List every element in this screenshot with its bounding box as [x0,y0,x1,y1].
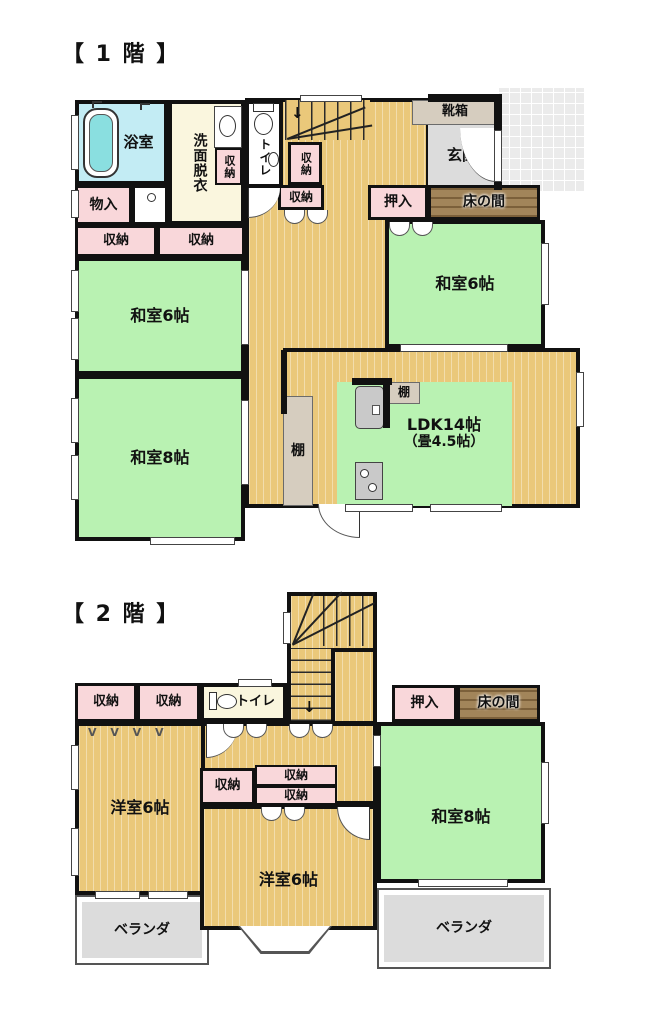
double-door-icon [388,222,434,236]
shower-icon [92,101,102,108]
bay-window [240,926,330,951]
shower-icon [140,103,150,110]
tokonoma-label: 床の間 [478,695,520,711]
toilet-icon [217,694,237,709]
closet-monoire: 物入 [75,185,132,225]
veranda-label: ベランダ [114,922,170,938]
window [71,318,79,360]
room-label: 浴室 [123,134,153,151]
shoe-cabinet: 靴箱 [412,100,498,125]
room-label: 洋室6帖 [259,871,318,889]
window [71,398,79,443]
room-washitsu8-1f: 和室8帖 [75,375,245,541]
down-arrow-icon: ↓ [291,104,304,122]
closet-oshiire-1f: 押入 [368,185,428,220]
closet-e-2f: 収納 [255,786,337,805]
closet-label: 収納 [299,152,312,176]
shelf-label: 棚 [398,386,410,400]
sink-basin [372,405,380,415]
down-arrow-icon: ↓ [303,698,316,716]
closet-label: 収納 [222,155,235,179]
closet-b-2f: 収納 [137,683,200,722]
sliding-door [400,344,508,352]
window [430,504,502,512]
tokonoma-label: 床の間 [463,194,505,210]
title-floor1: 【 1 階 】 [62,36,180,68]
closet-a-2f: 収納 [75,683,137,722]
veranda-right: ベランダ [377,888,551,969]
room-washitsu8-2f: 和室8帖 [377,722,545,883]
wall [281,350,287,414]
double-door-icon [260,807,306,821]
closet-label: 収納 [188,234,214,249]
bathtub-icon [83,108,119,178]
closet-label: 収納 [214,779,240,794]
floorplan-canvas: 【 1 階 】 ↓ 浴室 洗面脱衣 収納 トイレ 物入 [0,0,655,1024]
closet-label: 収納 [93,695,119,710]
burner [360,469,369,478]
room-label: 洗面脱衣 [191,133,207,193]
window [576,372,584,427]
closet-label: 収納 [155,695,181,710]
bathtub-water [89,114,113,172]
double-door-icon [288,724,334,738]
closet-stairs-v: 収納 [288,142,322,185]
closet-label: 物入 [90,197,118,213]
closet-label: 収納 [103,234,129,249]
closet-label: 収納 [284,769,308,783]
shelf-small: 棚 [388,382,420,404]
window [300,95,362,102]
tokonoma-1f: 床の間 [428,185,540,220]
closet-label: 押入 [384,194,412,210]
room-washitsu6-right: 和室6帖 [385,220,545,348]
tokonoma-2f: 床の間 [457,685,540,722]
kitchen-sink-icon [355,386,384,429]
closet-label: 押入 [411,695,439,711]
entrance-porch-tiles [498,88,584,192]
room-washitsu6-left: 和室6帖 [75,257,245,375]
ldk-label-line1: LDK14帖 [384,416,504,434]
window [71,455,79,500]
room-label: 洋室6帖 [110,799,169,817]
window [71,270,79,312]
double-door-icon [283,210,329,224]
door-gap [373,735,381,767]
washbasin-bowl [219,115,236,137]
window [148,891,188,899]
veranda-left: ベランダ [75,895,209,965]
window [71,190,79,218]
burner [368,483,377,492]
veranda-label: ベランダ [436,920,492,936]
wall [494,96,502,132]
sliding-door [241,270,249,345]
closet-a-1f: 収納 [75,225,157,257]
laundry-space [132,185,168,225]
window [150,537,235,545]
room-label: 和室6帖 [130,307,189,325]
stove-icon [355,462,383,500]
closet-d-2f: 収納 [255,765,337,786]
window [71,745,79,790]
shelf-tall: 棚 [283,396,313,506]
window [283,612,291,644]
closet-c-2f: 収納 [200,768,255,805]
window [418,879,508,887]
window [345,504,413,512]
closet-oshiire-2f: 押入 [392,685,457,722]
shoe-cabinet-label: 靴箱 [442,105,468,120]
window [541,243,549,305]
toilet-tank-icon [209,692,217,710]
room-label: トイレ [236,695,275,710]
closet-label: 収納 [289,191,313,205]
window [238,679,272,687]
drain-icon [147,193,156,202]
room-yoshitsu6-left: 洋室6帖 [75,722,205,895]
room-label: LDK14帖 （畳4.5帖） [384,416,504,450]
double-door-icon [222,724,268,738]
stair-side-space [331,648,377,725]
shelf-label: 棚 [291,443,305,459]
window [541,762,549,824]
closet-stairs-h: 収納 [278,185,324,210]
toilet-icon [254,113,273,135]
closet-b-1f: 収納 [157,225,245,257]
folding-door-icon: V V V V [88,726,169,739]
sliding-door [241,400,249,485]
closet-washroom: 収納 [215,148,242,185]
hand-basin-icon [268,152,279,167]
entrance-door-gap [494,130,502,182]
window [71,115,79,170]
room-label: 和室8帖 [431,808,490,826]
washbasin-icon [214,106,242,148]
room-label: 和室6帖 [435,275,494,293]
title-floor2: 【 2 階 】 [62,596,180,628]
window [95,891,140,899]
closet-label: 収納 [284,789,308,803]
window [71,828,79,876]
toilet-tank-icon [253,103,274,112]
wall [428,94,502,102]
ldk-label-line2: （畳4.5帖） [384,434,504,450]
room-label: 和室8帖 [130,449,189,467]
wall [383,380,390,428]
